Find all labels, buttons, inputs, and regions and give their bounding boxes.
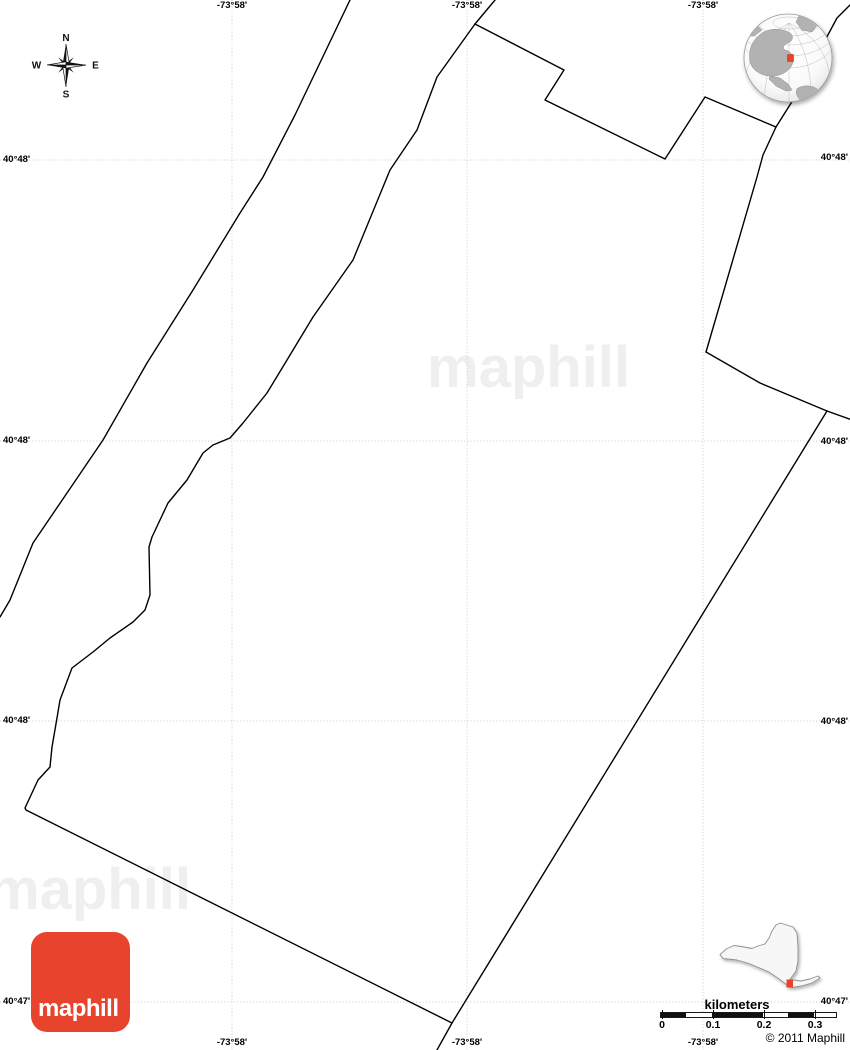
ny-state-locator — [720, 923, 820, 988]
boundary-north_jagged — [475, 24, 776, 159]
coord-label-left-1: 40°48' — [3, 155, 30, 165]
scalebar-tick — [764, 1010, 765, 1019]
maphill-logo[interactable]: maphill — [31, 932, 130, 1032]
coord-label-left-3: 40°48' — [3, 716, 30, 726]
compass-label-w: W — [32, 61, 42, 72]
scalebar-tick-label-1: 0.1 — [706, 1019, 721, 1031]
coord-label-top-3: -73°58' — [688, 1, 718, 11]
compass-label-e: E — [92, 61, 99, 72]
compass-west-point — [47, 62, 66, 65]
boundary-district_west_south — [25, 0, 495, 1023]
scalebar-tick — [713, 1010, 714, 1019]
scalebar-title: kilometers — [704, 997, 769, 1012]
scalebar-tick — [662, 1010, 663, 1019]
scalebar — [660, 1012, 837, 1018]
map-canvas: maphill maphill — [0, 0, 850, 1050]
compass-rose: N S W E — [32, 33, 99, 101]
globe-location-marker — [788, 55, 794, 62]
coord-label-right-3: 40°48' — [821, 717, 848, 727]
ny-state-outline — [720, 923, 820, 988]
coord-label-right-1: 40°48' — [821, 153, 848, 163]
coord-label-left-4: 40°47' — [3, 997, 30, 1007]
coord-label-right-2: 40°48' — [821, 437, 848, 447]
scalebar-segment — [686, 1013, 712, 1017]
globe-locator-icon — [736, 0, 842, 103]
compass-label-n: N — [62, 33, 69, 44]
map-svg: N S W E — [0, 0, 850, 1050]
maphill-logo-text: maphill — [38, 995, 119, 1023]
boundary-northeast_corner — [706, 352, 850, 420]
compass-label-s: S — [63, 90, 70, 101]
scalebar-tick-label-2: 0.2 — [757, 1019, 772, 1031]
scalebar-segment — [712, 1013, 763, 1017]
ny-location-marker — [787, 980, 794, 988]
coord-label-bottom-1: -73°58' — [217, 1038, 247, 1048]
coord-label-left-2: 40°48' — [3, 436, 30, 446]
scalebar-segment — [661, 1013, 686, 1017]
boundary-lines — [0, 0, 850, 1050]
coord-label-right-4: 40°47' — [821, 997, 848, 1007]
coord-label-bottom-3: -73°58' — [688, 1038, 718, 1048]
scalebar-tick — [815, 1010, 816, 1019]
boundary-west_outer — [0, 0, 350, 617]
coord-label-top-1: -73°58' — [217, 1, 247, 11]
copyright-text: © 2011 Maphill — [766, 1031, 845, 1045]
coord-label-top-2: -73°58' — [452, 1, 482, 11]
scalebar-tick-label-0: 0 — [659, 1019, 665, 1031]
grid-lines — [0, 0, 850, 1050]
coord-label-bottom-2: -73°58' — [452, 1038, 482, 1048]
scalebar-tick-label-3: 0.3 — [808, 1019, 823, 1031]
scalebar-segment — [763, 1013, 788, 1017]
scalebar-segment — [788, 1013, 814, 1017]
scalebar-segment — [814, 1013, 836, 1017]
